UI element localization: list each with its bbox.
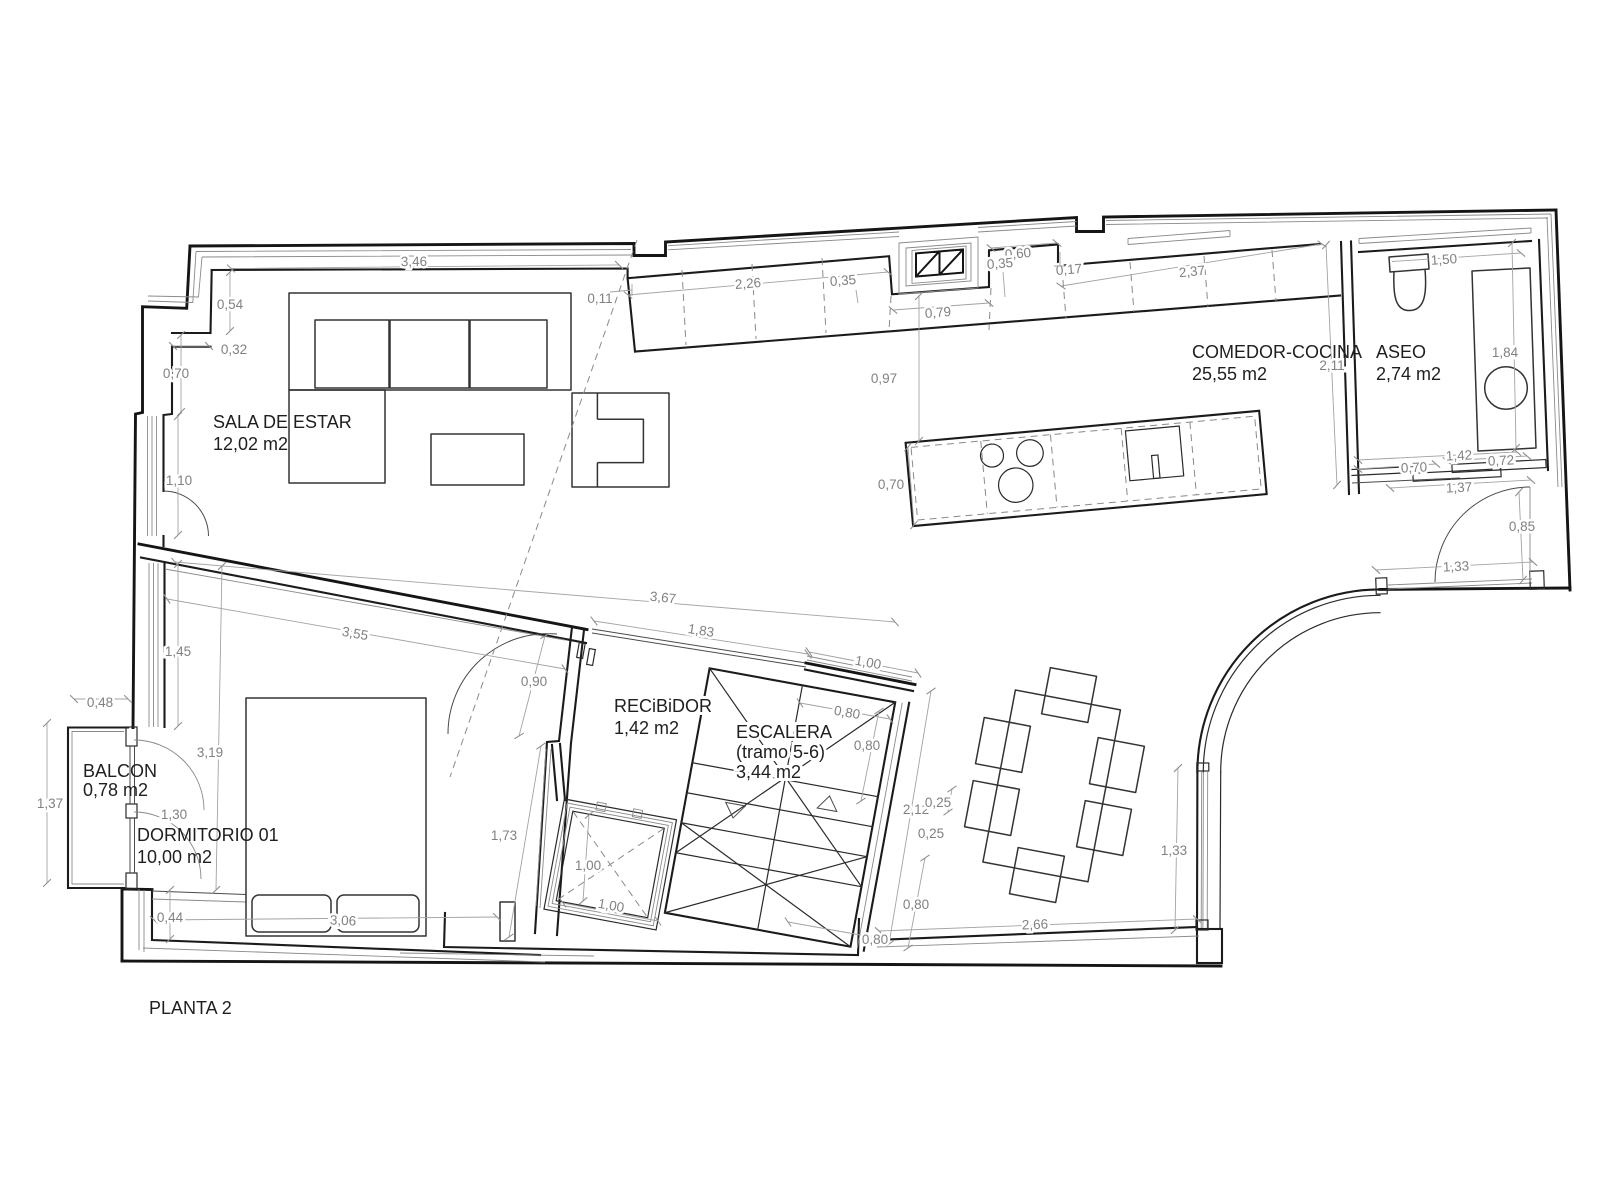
svg-text:BALCON: BALCON (83, 761, 157, 781)
svg-text:0,11: 0,11 (587, 291, 612, 306)
svg-text:SALA DE ESTAR: SALA DE ESTAR (213, 412, 352, 432)
svg-text:1,84: 1,84 (1492, 345, 1519, 360)
svg-text:ASEO: ASEO (1376, 342, 1426, 362)
svg-text:DORMITORIO 01: DORMITORIO 01 (137, 825, 279, 845)
svg-text:0,85: 0,85 (1509, 519, 1535, 534)
svg-text:1,00: 1,00 (575, 858, 601, 873)
svg-text:0,78 m2: 0,78 m2 (83, 780, 148, 800)
svg-text:1,42: 1,42 (1445, 447, 1472, 463)
svg-text:RECiBiDOR: RECiBiDOR (614, 696, 712, 716)
svg-text:1,10: 1,10 (166, 473, 192, 488)
svg-text:0,80: 0,80 (862, 932, 888, 947)
svg-text:0,97: 0,97 (871, 371, 897, 386)
svg-text:2,37: 2,37 (1178, 263, 1206, 281)
svg-text:3,19: 3,19 (197, 745, 223, 760)
svg-text:2,66: 2,66 (1022, 917, 1049, 933)
svg-text:0,72: 0,72 (1487, 452, 1514, 468)
svg-text:0,70: 0,70 (878, 477, 904, 492)
svg-text:12,02 m2: 12,02 m2 (213, 434, 288, 454)
svg-text:0,25: 0,25 (925, 795, 951, 810)
svg-text:0,35: 0,35 (829, 272, 856, 289)
svg-text:1,50: 1,50 (1430, 251, 1457, 268)
svg-text:3,46: 3,46 (401, 254, 427, 269)
svg-text:PLANTA 2: PLANTA 2 (149, 998, 232, 1018)
svg-text:0,54: 0,54 (217, 297, 244, 312)
svg-text:2,26: 2,26 (734, 275, 761, 292)
svg-text:25,55 m2: 25,55 m2 (1192, 364, 1267, 384)
svg-text:(tramo 5-6): (tramo 5-6) (736, 742, 825, 762)
svg-text:3,44 m2: 3,44 m2 (736, 762, 801, 782)
svg-text:1,37: 1,37 (37, 796, 63, 811)
svg-text:1,42 m2: 1,42 m2 (614, 718, 679, 738)
svg-text:3,67: 3,67 (649, 589, 677, 607)
svg-text:1,37: 1,37 (1445, 479, 1472, 495)
svg-text:1,73: 1,73 (491, 828, 517, 843)
svg-text:1,33: 1,33 (1442, 558, 1469, 574)
svg-text:0,90: 0,90 (521, 674, 547, 689)
svg-text:ESCALERA: ESCALERA (736, 722, 832, 742)
svg-text:0,44: 0,44 (157, 910, 184, 925)
svg-text:1,30: 1,30 (161, 807, 187, 822)
svg-text:0,70: 0,70 (163, 366, 189, 381)
svg-text:COMEDOR-COCINA: COMEDOR-COCINA (1192, 342, 1362, 362)
svg-text:3,06: 3,06 (330, 913, 357, 929)
svg-text:0,35: 0,35 (986, 255, 1013, 272)
svg-text:0,70: 0,70 (1400, 459, 1427, 475)
svg-text:1,33: 1,33 (1161, 843, 1187, 858)
svg-text:0,80: 0,80 (854, 738, 880, 753)
svg-text:0,79: 0,79 (924, 304, 951, 321)
svg-text:0,25: 0,25 (918, 826, 944, 841)
svg-text:0,48: 0,48 (87, 695, 113, 710)
svg-text:10,00 m2: 10,00 m2 (137, 847, 212, 867)
svg-text:0,80: 0,80 (903, 897, 929, 912)
svg-text:1,45: 1,45 (165, 644, 191, 659)
svg-text:0,32: 0,32 (221, 342, 247, 357)
svg-text:2,74 m2: 2,74 m2 (1376, 364, 1441, 384)
svg-text:0,17: 0,17 (1055, 261, 1082, 278)
